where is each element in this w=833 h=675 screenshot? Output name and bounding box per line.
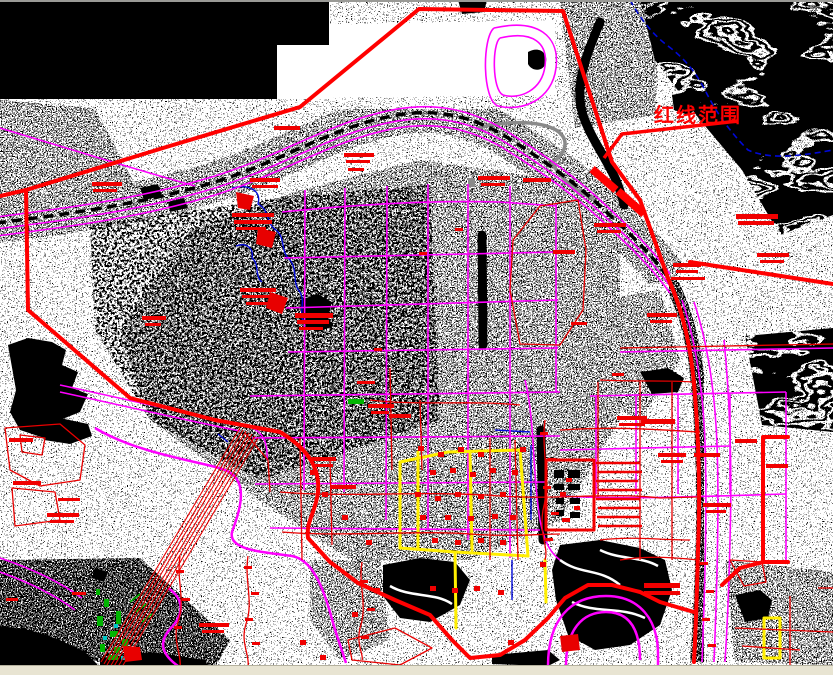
red-squares-shape [430, 586, 436, 591]
label-bars-shape [644, 591, 680, 595]
compound-black-shape [554, 484, 564, 490]
red-squares-shape [520, 447, 526, 452]
red-fills-shape [123, 646, 142, 662]
red-squares-shape [470, 472, 476, 477]
label-bars-shape [760, 260, 784, 263]
red-ticks-shape [706, 590, 714, 593]
label-bars-shape [523, 178, 551, 182]
red-squares-shape [500, 540, 506, 545]
label-bars-shape [703, 503, 731, 507]
label-bars-shape [315, 464, 333, 467]
red-squares-shape [510, 515, 516, 520]
red-ticks-shape [244, 566, 252, 569]
red-squares-shape [478, 494, 484, 499]
label-bars-shape [92, 182, 122, 186]
magenta-roads-shape [386, 186, 387, 520]
compound-black-shape [554, 470, 564, 478]
green-marks-shape [348, 399, 364, 404]
label-bars-shape [735, 439, 757, 443]
cad-map-canvas[interactable]: 红线范围 [0, 0, 833, 675]
label-bars-shape [419, 252, 427, 255]
compound-black-shape [556, 498, 564, 504]
label-bars-shape [234, 220, 272, 224]
black-river-shape [482, 235, 483, 345]
label-bars-shape [766, 464, 788, 468]
red-squares-shape [478, 538, 484, 543]
gray-marks-shape [468, 178, 475, 187]
label-bars-shape [330, 485, 356, 489]
red-squares-shape [450, 468, 456, 473]
label-bars-shape [50, 520, 74, 523]
red-ticks-shape [540, 432, 548, 435]
red-squares-shape [435, 496, 441, 501]
label-bars-shape [199, 623, 229, 627]
label-bars-shape [738, 221, 774, 225]
red-squares-shape [415, 492, 421, 497]
red-squares-shape [468, 516, 474, 521]
label-bars-shape [202, 630, 224, 633]
label-bars-shape [389, 414, 411, 418]
label-bars-shape [455, 228, 463, 231]
magenta-roads-shape [344, 188, 345, 492]
map-layers [0, 0, 833, 672]
red-squares-shape [458, 447, 464, 452]
compound-red-shape [562, 518, 570, 522]
label-bars-shape [478, 176, 510, 180]
green-marks-shape [116, 611, 121, 624]
label-bars-shape [553, 250, 575, 254]
red-fills-shape [560, 634, 580, 652]
red-squares-shape [342, 515, 348, 520]
label-bars-shape [647, 313, 677, 317]
red-squares-shape [320, 655, 326, 660]
label-bars-shape [236, 227, 266, 230]
black-solids-shape [458, 0, 487, 14]
red-ticks-shape [700, 562, 708, 565]
red-ticks-shape [252, 642, 260, 645]
red-squares-shape [352, 612, 358, 617]
label-bars-shape [58, 498, 80, 501]
red-ticks-shape [182, 598, 190, 601]
label-bars-shape [72, 592, 86, 595]
red-squares-shape [492, 514, 498, 519]
red-ticks-shape [251, 592, 259, 595]
green-marks-shape [97, 616, 103, 626]
label-bars-shape [650, 320, 672, 323]
compound-black-shape [568, 470, 580, 478]
red-squares-shape [445, 515, 451, 520]
red-squares-shape [508, 640, 514, 645]
label-bars-shape [481, 183, 505, 186]
label-bars-shape [299, 327, 323, 330]
red-ticks-shape [708, 644, 716, 647]
red-squares-shape [430, 470, 436, 475]
cyan-marks-shape [103, 636, 107, 640]
label-bars-shape [240, 288, 276, 292]
green-marks-shape [104, 599, 109, 607]
label-bars-shape [252, 185, 278, 188]
compound-red-shape [566, 478, 572, 482]
label-bars-shape [9, 438, 33, 442]
red-squares-shape [418, 446, 424, 451]
red-ticks-shape [174, 626, 182, 629]
window-bottom-edge-line [0, 665, 833, 666]
label-bars-shape [250, 178, 280, 182]
label-bars-shape [594, 223, 626, 227]
red-ticks-shape [245, 618, 253, 621]
label-bars-shape [145, 323, 161, 326]
red-squares-shape [490, 468, 496, 473]
label-bars-shape [232, 213, 274, 217]
label-bars-shape [246, 302, 268, 305]
label-bars-shape [344, 153, 374, 157]
label-bars-shape [597, 230, 621, 233]
label-bars-shape [142, 316, 166, 320]
label-bars-shape [357, 381, 375, 384]
green-marks-shape [96, 589, 100, 595]
label-bars-shape [661, 460, 683, 463]
red-squares-shape [478, 452, 484, 457]
label-bars-shape [371, 411, 389, 414]
red-ticks-shape [545, 538, 553, 541]
white-patches-shape [305, 20, 555, 98]
cyan-marks-shape [114, 624, 118, 628]
label-bars-shape [658, 453, 686, 457]
red-squares-shape [500, 492, 506, 497]
label-bars-shape [374, 348, 382, 351]
yellow-roads-shape [470, 452, 472, 550]
red-squares-shape [438, 452, 444, 457]
label-bars-shape [47, 513, 79, 517]
cad-map-window: 红线范围 [0, 0, 833, 675]
red-squares-shape [474, 586, 480, 591]
compound-red-shape [574, 506, 580, 510]
window-top-edge [0, 0, 833, 2]
label-bars-shape [676, 270, 698, 273]
magenta-roads-shape [304, 190, 305, 490]
label-bars-shape [312, 457, 336, 461]
label-bars-shape [671, 277, 705, 280]
label-bars-shape [706, 510, 726, 513]
label-bars-shape [612, 373, 624, 376]
white-patches [305, 20, 555, 98]
red-squares-shape [432, 538, 438, 543]
label-bars-shape [274, 126, 300, 130]
compound-black-shape [570, 498, 580, 504]
red-line-scope-label: 红线范围 [654, 103, 742, 127]
red-ticks-shape [551, 512, 559, 515]
red-squares-shape [498, 590, 504, 595]
label-bars-shape [93, 189, 117, 192]
red-ticks-shape [548, 458, 556, 461]
compound-black-shape [570, 512, 580, 518]
label-bars-shape [13, 481, 41, 485]
label-bars-shape [6, 598, 18, 601]
red-ticks-shape [361, 636, 369, 639]
compound-black-shape [568, 484, 580, 490]
compound-red-shape [560, 492, 566, 496]
label-bars-shape [297, 320, 329, 324]
red-squares-shape [540, 562, 546, 567]
window-bottom-edge [0, 666, 833, 675]
red-squares-shape [512, 470, 518, 475]
label-bars-shape [242, 295, 272, 298]
label-bars-shape [571, 322, 587, 325]
gray-marks [468, 178, 475, 187]
red-ticks-shape [702, 618, 710, 621]
label-bars-shape [346, 160, 370, 163]
black-solids-shape [528, 50, 546, 70]
label-bars-shape [295, 313, 333, 318]
label-bars-shape [368, 404, 394, 408]
red-ticks-shape [176, 570, 184, 573]
red-squares-shape [322, 492, 328, 497]
label-bars-shape [644, 583, 680, 588]
red-ticks-shape [543, 486, 551, 489]
red-squares-shape [420, 515, 426, 520]
label-bars-shape [348, 168, 364, 171]
red-ticks-shape [367, 608, 375, 611]
red-squares-shape [452, 588, 458, 593]
label-bars-shape [757, 253, 789, 257]
label-bars-shape [736, 214, 778, 219]
red-squares-shape [300, 640, 306, 645]
red-squares-shape [366, 540, 372, 545]
red-squares-shape [455, 492, 461, 497]
green-marks-shape [100, 644, 105, 652]
red-squares-shape [455, 540, 461, 545]
label-bars-shape [641, 419, 675, 424]
